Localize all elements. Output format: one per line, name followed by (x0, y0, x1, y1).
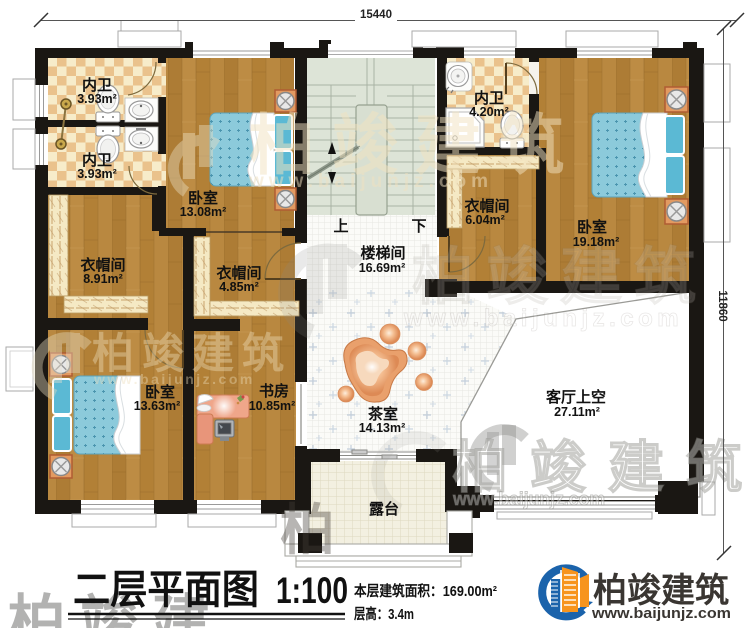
svg-text:14.13m²: 14.13m² (359, 421, 406, 435)
svg-text:16.69m²: 16.69m² (359, 261, 406, 275)
svg-text:www.baijunjz.com: www.baijunjz.com (403, 305, 683, 332)
svg-text:4.85m²: 4.85m² (219, 280, 259, 294)
svg-text:3.93m²: 3.93m² (77, 92, 117, 106)
svg-text:15440: 15440 (360, 9, 392, 21)
svg-text:楼梯间: 楼梯间 (360, 244, 405, 262)
svg-text:19.18m²: 19.18m² (573, 235, 620, 249)
svg-text:下: 下 (411, 218, 426, 235)
svg-text:柏竣建筑: 柏竣建筑 (412, 243, 708, 312)
svg-text:www.baijunjz.com: www.baijunjz.com (248, 171, 493, 192)
svg-text:柏竣建筑: 柏竣建筑 (593, 571, 729, 610)
svg-text:6.04m²: 6.04m² (465, 213, 505, 227)
svg-text:11860: 11860 (716, 290, 728, 321)
svg-text:1:100: 1:100 (276, 570, 348, 611)
svg-text:13.63m²: 13.63m² (134, 399, 181, 413)
svg-text:www.baijunjz.com: www.baijunjz.com (591, 606, 731, 622)
svg-text:4.20m²: 4.20m² (469, 105, 509, 119)
svg-text:柏竣建筑: 柏竣建筑 (92, 330, 292, 377)
svg-text:27.11m²: 27.11m² (554, 405, 600, 419)
svg-text:上: 上 (333, 218, 348, 235)
svg-text:卧室: 卧室 (577, 218, 607, 236)
svg-text:二层平面图: 二层平面图 (73, 568, 259, 612)
svg-text:3.93m²: 3.93m² (77, 167, 117, 181)
svg-text:www.baijunjz.com: www.baijunjz.com (452, 489, 605, 509)
svg-text:客厅上空: 客厅上空 (545, 388, 606, 406)
svg-text:13.08m²: 13.08m² (180, 205, 227, 219)
svg-text:本层建筑面积：169.00m²: 本层建筑面积：169.00m² (354, 582, 497, 600)
svg-text:柏: 柏 (280, 499, 335, 561)
svg-text:8.91m²: 8.91m² (83, 272, 123, 286)
svg-text:露台: 露台 (369, 500, 399, 518)
svg-text:层高：3.4m: 层高：3.4m (354, 605, 414, 623)
svg-text:10.85m²: 10.85m² (249, 399, 296, 413)
svg-text:书房: 书房 (259, 382, 289, 400)
